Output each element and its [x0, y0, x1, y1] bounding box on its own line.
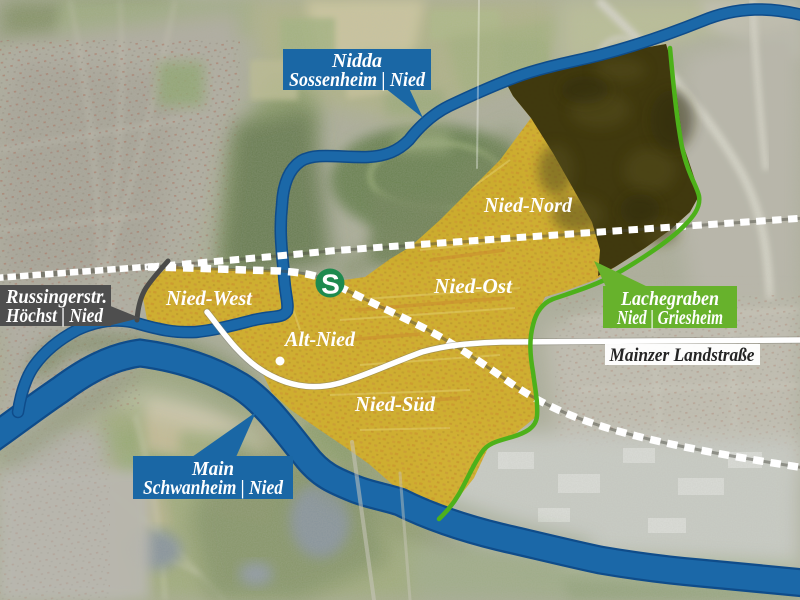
svg-text:Nied | Griesheim: Nied | Griesheim [616, 307, 723, 329]
svg-text:Schwanheim | Nied: Schwanheim | Nied [143, 477, 284, 499]
svg-text:Nied-Nord: Nied-Nord [483, 193, 572, 217]
svg-text:Sossenheim | Nied: Sossenheim | Nied [289, 69, 426, 91]
svg-text:Mainzer Landstraße: Mainzer Landstraße [609, 345, 755, 366]
svg-text:Alt-Nied: Alt-Nied [283, 327, 355, 351]
svg-text:Nied-West: Nied-West [165, 286, 253, 310]
svg-text:S: S [321, 269, 340, 300]
svg-text:Nied-Ost: Nied-Ost [433, 274, 513, 298]
svg-text:Höchst | Nied: Höchst | Nied [5, 305, 104, 327]
svg-text:Nied-Süd: Nied-Süd [354, 392, 435, 416]
